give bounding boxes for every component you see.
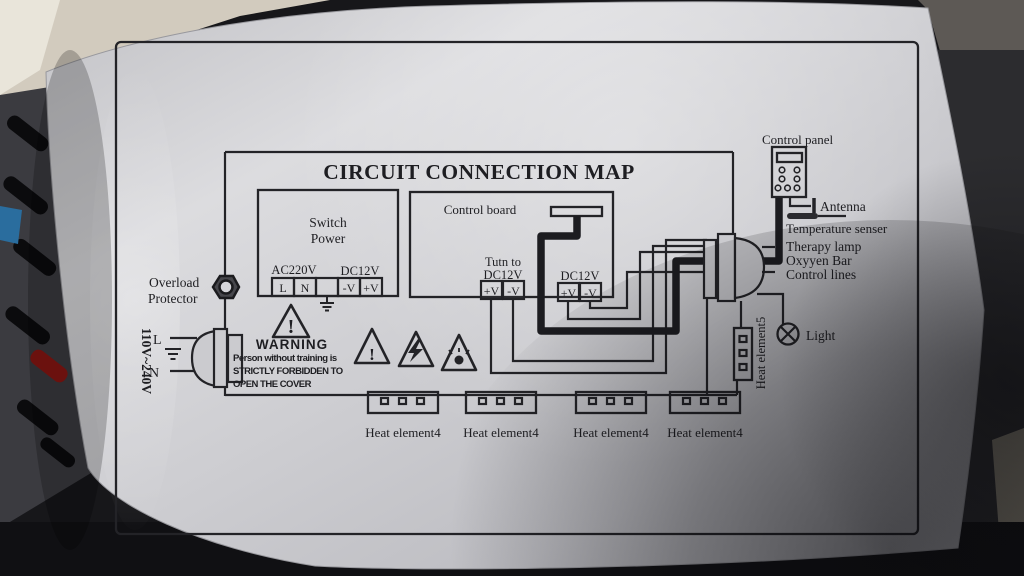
terminal-plusv: +V: [363, 281, 379, 295]
caution-exclamation: !: [369, 345, 375, 364]
temperature-probe-icon: [787, 213, 818, 219]
dc-label: DC12V: [341, 264, 380, 278]
warning-exclamation: !: [288, 316, 295, 338]
turn-plusv: +V: [484, 284, 500, 298]
overload-label-1: Overload: [149, 275, 199, 290]
terminal-minusv: -V: [343, 281, 356, 295]
terminal-l: L: [279, 281, 286, 295]
ac-label: AC220V: [271, 263, 316, 277]
line-l-label: L: [153, 333, 162, 348]
turn-terminal-strip: +V -V: [481, 281, 524, 299]
heat-element4-label: Heat element4: [365, 425, 441, 440]
overload-label-2: Protector: [148, 291, 198, 306]
map-title: CIRCUIT CONNECTION MAP: [323, 160, 635, 184]
warning-title: WARNING: [256, 337, 328, 352]
voltage-label: 110V~240V: [139, 328, 154, 395]
warning-line-3: OPEN THE COVER: [233, 379, 312, 390]
dc12v-label-2: DC12V: [561, 269, 600, 283]
warning-line-1: Person without training is: [233, 353, 337, 364]
control-panel-label: Control panel: [762, 132, 834, 147]
dc-plusv: +V: [561, 286, 577, 300]
switch-power-label-2: Power: [311, 231, 346, 246]
terminal-n: N: [301, 281, 310, 295]
control-board-label: Control board: [444, 202, 517, 217]
warning-line-2: STRICTLY FORBIDDEN TO: [233, 366, 343, 377]
turn-minusv: -V: [507, 284, 520, 298]
switch-power-terminal-strip: L N -V +V: [272, 278, 382, 296]
photo-scene: CIRCUIT CONNECTION MAP Switch Power AC22…: [0, 0, 1024, 576]
switch-power-label-1: Switch: [309, 215, 347, 230]
photo-svg: CIRCUIT CONNECTION MAP Switch Power AC22…: [0, 0, 1024, 576]
line-n-label: N: [149, 366, 159, 381]
turn-to-label-2: DC12V: [484, 268, 523, 282]
turn-to-label-1: Tutn to: [485, 255, 521, 269]
